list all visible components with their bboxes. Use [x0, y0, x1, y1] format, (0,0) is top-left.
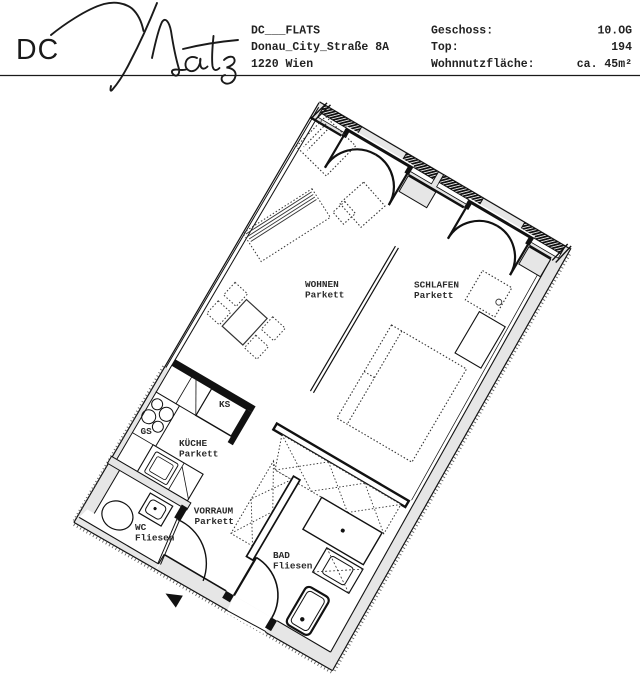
svg-text:Parkett: Parkett [195, 516, 234, 527]
svg-text:Donau_City_Straße 8A: Donau_City_Straße 8A [251, 41, 389, 54]
svg-text:KÜCHE: KÜCHE [179, 438, 208, 449]
svg-text:DC: DC [16, 34, 59, 66]
svg-text:Geschoss:: Geschoss: [431, 25, 493, 38]
svg-text:194: 194 [611, 41, 632, 54]
svg-text:Fliesen: Fliesen [273, 561, 313, 572]
svg-text:WC: WC [135, 522, 147, 533]
svg-text:BAD: BAD [273, 550, 290, 561]
svg-text:DC___FLATS: DC___FLATS [251, 25, 320, 38]
svg-text:10.OG: 10.OG [597, 25, 632, 38]
svg-text:ca. 45m²: ca. 45m² [577, 58, 632, 71]
svg-text:VORRAUM: VORRAUM [194, 506, 234, 517]
svg-text:Top:: Top: [431, 41, 459, 54]
svg-text:1220 Wien: 1220 Wien [251, 58, 313, 71]
svg-text:Wohnnutzfläche:: Wohnnutzfläche: [431, 58, 535, 71]
svg-text:Parkett: Parkett [179, 449, 218, 460]
svg-text:GS: GS [141, 426, 153, 437]
svg-text:Fliesen: Fliesen [135, 533, 175, 544]
svg-text:WOHNEN: WOHNEN [305, 279, 339, 290]
svg-text:Parkett: Parkett [414, 290, 453, 301]
svg-text:Parkett: Parkett [305, 290, 344, 301]
svg-text:KS: KS [219, 399, 231, 410]
